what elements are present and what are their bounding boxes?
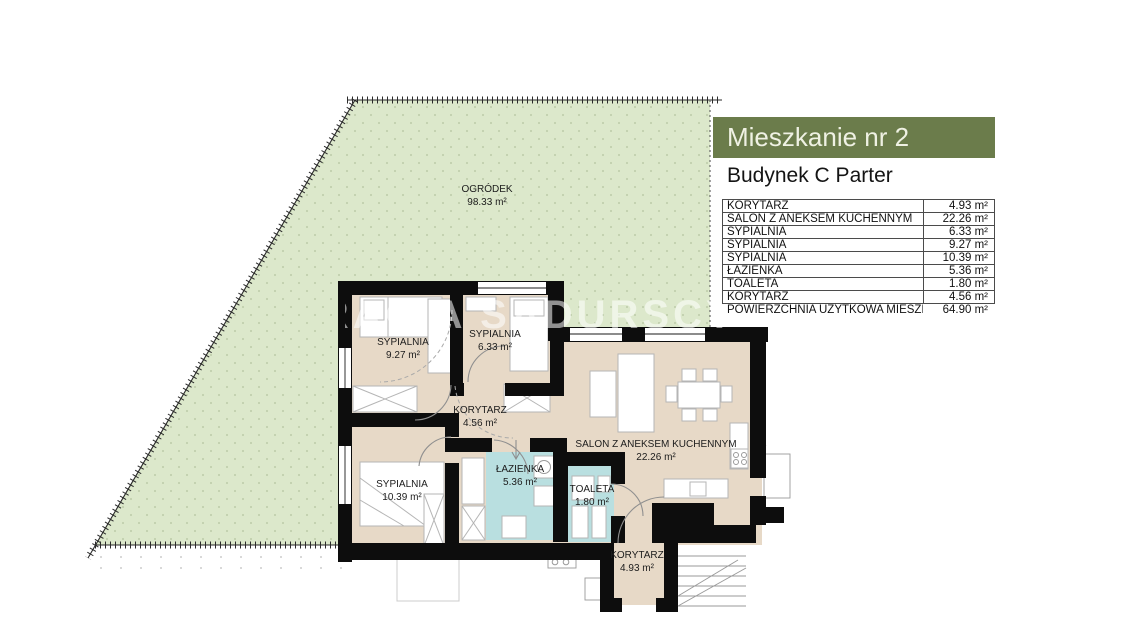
sofa-icon [618,354,654,432]
toilet-icon [502,516,526,538]
room-label-korytarz-4-56: KORYTARZ 4.56 m² [420,404,540,430]
room-name-cell: SYPIALNIA [723,226,924,239]
room-name-cell: KORYTARZ [723,200,924,213]
room-area-cell: 6.33 m² [924,226,995,239]
table-row: KORYTARZ 4.93 m² [723,200,995,213]
room-name-cell: SYPIALNIA [723,239,924,252]
table-total-row: POWIERZCHNIA UŻYTKOWA MIESZKANIA 64.90 m… [723,304,995,317]
room-label-ogrodek: OGRÓDEK 98.33 m² [427,183,547,209]
room-area-cell: 5.36 m² [924,265,995,278]
cabinet-icon [462,506,485,540]
room-name-cell: SYPIALNIA [723,252,924,265]
room-label-sypialnia-6-33: SYPIALNIA 6.33 m² [435,328,555,354]
sink-icon [690,482,706,496]
pillow-icon [364,300,384,320]
armchair-icon [590,371,616,417]
floor-plan-page: BRACIA SADURSCY OGRÓDEK 98.33 m² SYPIALN… [0,0,1129,631]
page-title: Mieszkanie nr 2 [727,122,909,152]
table-row: SYPIALNIA 6.33 m² [723,226,995,239]
room-area-cell: 1.80 m² [924,278,995,291]
room-label-sypialnia-10-39: SYPIALNIA 10.39 m² [342,478,462,504]
table-row: SALON Z ANEKSEM KUCHENNYM 22.26 m² [723,213,995,226]
shelf-icon [466,297,496,311]
apartment-title-banner: Mieszkanie nr 2 [713,117,995,158]
table-row: KORYTARZ 4.56 m² [723,291,995,304]
rooms-area-table: KORYTARZ 4.93 m² SALON Z ANEKSEM KUCHENN… [722,199,995,317]
room-label-salon: SALON Z ANEKSEM KUCHENNYM 22.26 m² [556,438,756,464]
room-label-korytarz-4-93: KORYTARZ 4.93 m² [577,549,697,575]
table-row: SYPIALNIA 10.39 m² [723,252,995,265]
room-name-cell: KORYTARZ [723,291,924,304]
window-icon [478,282,546,294]
room-area-cell: 4.93 m² [924,200,995,213]
room-name-cell: SALON Z ANEKSEM KUCHENNYM [723,213,924,226]
room-label-toaleta: TOALETA 1.80 m² [532,483,652,509]
total-area-cell: 64.90 m² [924,304,995,317]
room-name-cell: TOALETA [723,278,924,291]
room-area-cell: 22.26 m² [924,213,995,226]
room-area-cell: 10.39 m² [924,252,995,265]
building-subtitle: Budynek C Parter [727,164,893,188]
wardrobe-icon [353,386,417,412]
table-row: ŁAZIENKA 5.36 m² [723,265,995,278]
window-icon [645,328,705,341]
room-name-cell: ŁAZIENKA [723,265,924,278]
total-name-cell: POWIERZCHNIA UŻYTKOWA MIESZKANIA [723,304,924,317]
table-row: TOALETA 1.80 m² [723,278,995,291]
room-area-cell: 9.27 m² [924,239,995,252]
window-icon [570,328,622,341]
table-row: SYPIALNIA 9.27 m² [723,239,995,252]
pillow-icon [514,300,544,316]
room-area-cell: 4.56 m² [924,291,995,304]
